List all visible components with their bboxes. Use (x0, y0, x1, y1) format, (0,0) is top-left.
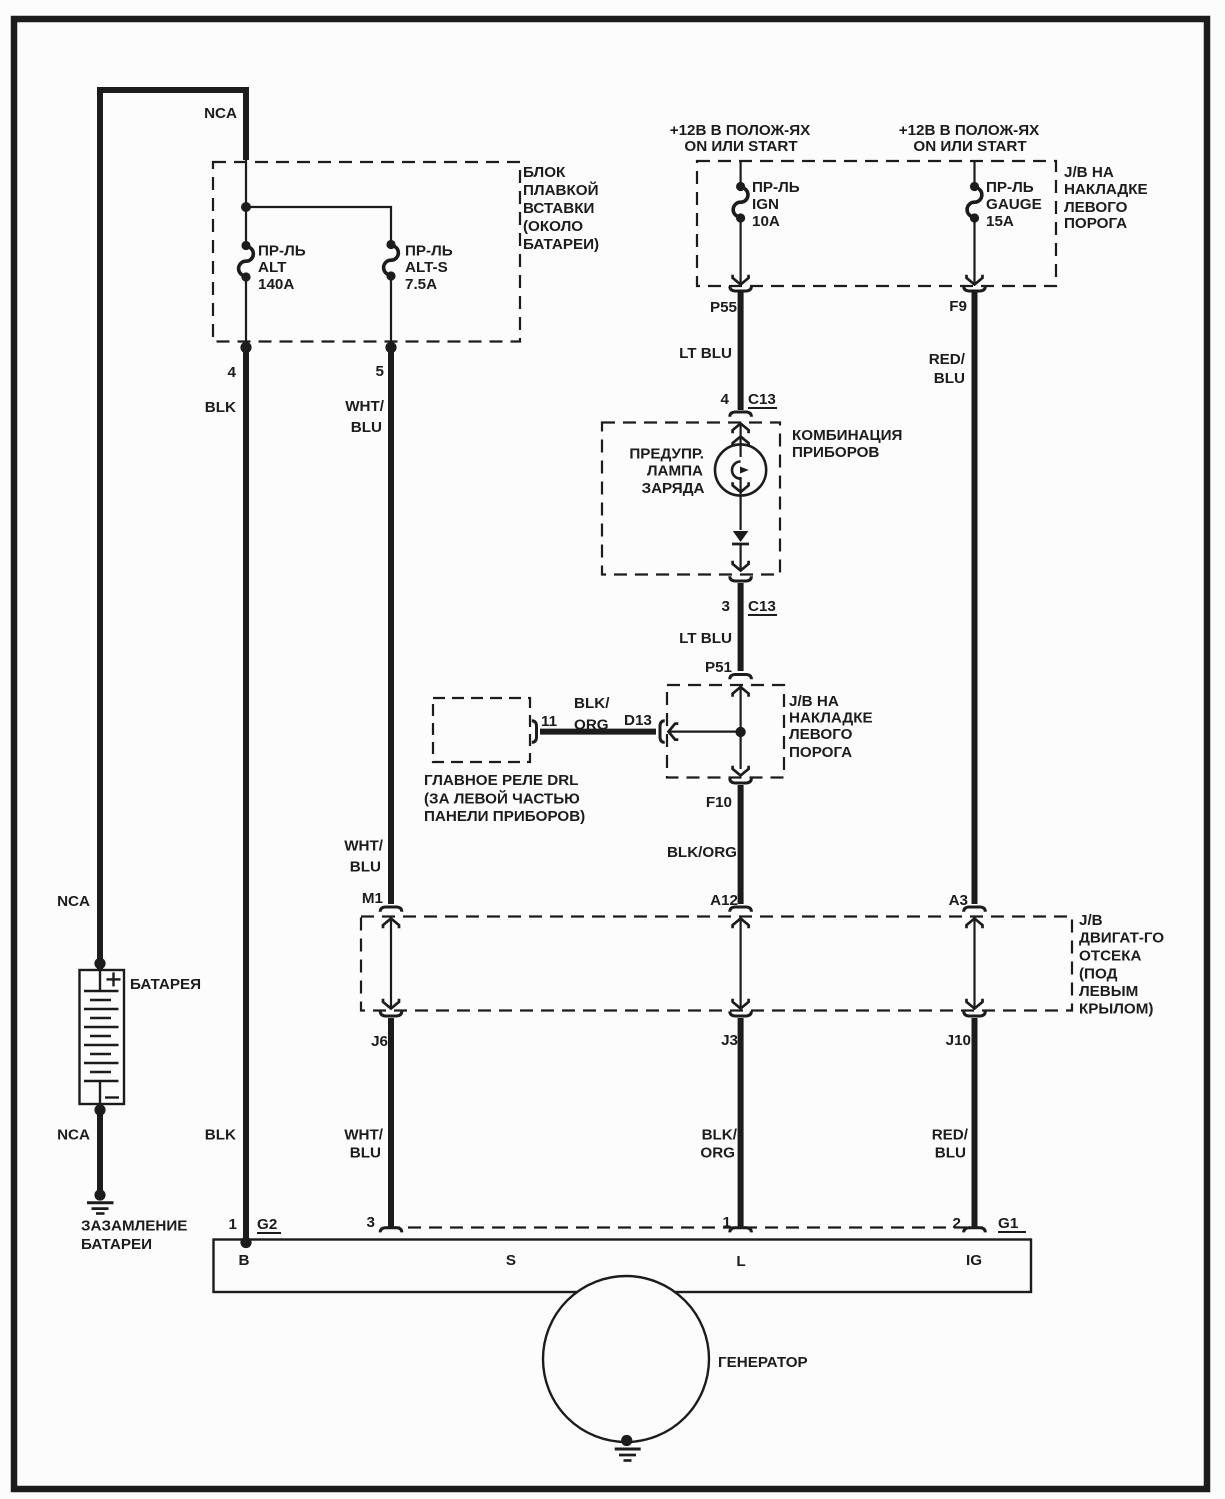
svg-text:4: 4 (721, 391, 730, 408)
svg-text:ПОРОГА: ПОРОГА (789, 744, 852, 761)
svg-text:КОМБИНАЦИЯ: КОМБИНАЦИЯ (792, 427, 902, 444)
svg-text:ЗАЗАМЛЕНИЕ: ЗАЗАМЛЕНИЕ (81, 1218, 187, 1235)
svg-text:ON ИЛИ START: ON ИЛИ START (684, 138, 798, 155)
svg-text:ПР-ЛЬ: ПР-ЛЬ (405, 243, 453, 260)
svg-text:BLK/ORG: BLK/ORG (667, 844, 737, 861)
svg-text:ПР-ЛЬ: ПР-ЛЬ (258, 243, 306, 260)
svg-text:ЛЕВЫМ: ЛЕВЫМ (1079, 983, 1138, 1000)
svg-text:15А: 15А (986, 213, 1014, 230)
svg-text:ПР-ЛЬ: ПР-ЛЬ (752, 179, 800, 196)
svg-text:J/B НА: J/B НА (789, 693, 839, 710)
svg-text:WHT/: WHT/ (344, 1127, 384, 1144)
svg-text:11: 11 (541, 713, 558, 730)
svg-text:RED/: RED/ (932, 1127, 969, 1144)
svg-text:NCA: NCA (57, 1127, 90, 1144)
svg-text:ВСТАВКИ: ВСТАВКИ (523, 200, 594, 217)
svg-text:(ЗА ЛЕВОЙ ЧАСТЬЮ: (ЗА ЛЕВОЙ ЧАСТЬЮ (424, 790, 580, 808)
svg-text:ЛЕВОГО: ЛЕВОГО (1064, 199, 1128, 216)
svg-text:P55: P55 (710, 299, 738, 316)
svg-text:BLU: BLU (350, 1145, 381, 1162)
svg-text:5: 5 (376, 363, 385, 380)
svg-text:LT BLU: LT BLU (679, 630, 732, 647)
svg-text:BLU: BLU (935, 1145, 966, 1162)
svg-text:4: 4 (228, 364, 237, 381)
svg-text:F10: F10 (706, 794, 732, 811)
svg-text:ДВИГАТ-ГО: ДВИГАТ-ГО (1079, 930, 1164, 947)
svg-text:10А: 10А (752, 213, 780, 230)
svg-text:P51: P51 (705, 659, 733, 676)
svg-text:+12В В ПОЛОЖ-ЯХ: +12В В ПОЛОЖ-ЯХ (670, 122, 811, 139)
svg-text:J6: J6 (371, 1033, 388, 1050)
svg-text:BLK: BLK (205, 399, 236, 416)
svg-text:LT BLU: LT BLU (679, 345, 732, 362)
svg-text:ГЕНЕРАТОР: ГЕНЕРАТОР (718, 1354, 808, 1371)
svg-text:L: L (736, 1253, 745, 1270)
svg-text:M1: M1 (362, 890, 384, 907)
svg-text:НАКЛАДКЕ: НАКЛАДКЕ (1064, 181, 1148, 198)
svg-text:B: B (239, 1252, 250, 1269)
svg-text:BLU: BLU (351, 419, 382, 436)
svg-text:BLU: BLU (934, 370, 965, 387)
svg-text:WHT/: WHT/ (344, 838, 384, 855)
svg-text:WHT/: WHT/ (345, 398, 385, 415)
svg-text:3: 3 (367, 1214, 375, 1231)
svg-text:F9: F9 (949, 298, 967, 315)
svg-text:J10: J10 (946, 1032, 971, 1049)
svg-text:J3: J3 (721, 1032, 738, 1049)
svg-text:1: 1 (229, 1216, 238, 1233)
svg-text:J/B: J/B (1079, 912, 1103, 929)
svg-text:ПРИБОРОВ: ПРИБОРОВ (792, 444, 879, 461)
svg-text:D13: D13 (624, 712, 652, 729)
svg-text:BLK: BLK (205, 1127, 236, 1144)
svg-text:C13: C13 (748, 391, 776, 408)
svg-text:C13: C13 (748, 598, 776, 615)
svg-text:(ОКОЛО: (ОКОЛО (523, 218, 583, 235)
svg-text:БАТАРЕИ): БАТАРЕИ) (523, 236, 599, 253)
svg-text:+12В В ПОЛОЖ-ЯХ: +12В В ПОЛОЖ-ЯХ (899, 122, 1040, 139)
svg-text:BLK/: BLK/ (574, 695, 610, 712)
svg-text:ORG: ORG (700, 1145, 735, 1162)
svg-text:ОТСЕКА: ОТСЕКА (1079, 948, 1141, 965)
svg-text:G1: G1 (998, 1215, 1019, 1232)
svg-text:RED/: RED/ (929, 351, 966, 368)
svg-text:ЗАРЯДА: ЗАРЯДА (642, 480, 705, 497)
svg-text:7.5А: 7.5А (405, 276, 437, 293)
svg-text:J/B НА: J/B НА (1064, 164, 1114, 181)
svg-text:BLK/: BLK/ (702, 1127, 738, 1144)
svg-text:ALT: ALT (258, 259, 287, 276)
svg-text:2: 2 (953, 1215, 961, 1232)
svg-text:КРЫЛОМ): КРЫЛОМ) (1079, 1001, 1153, 1018)
svg-text:ПАНЕЛИ ПРИБОРОВ): ПАНЕЛИ ПРИБОРОВ) (424, 808, 585, 825)
svg-text:GAUGE: GAUGE (986, 196, 1042, 213)
svg-text:NCA: NCA (57, 893, 90, 910)
svg-text:БЛОК: БЛОК (523, 164, 566, 181)
svg-text:ПЛАВКОЙ: ПЛАВКОЙ (523, 181, 599, 199)
svg-text:ALT-S: ALT-S (405, 259, 448, 276)
svg-text:ПРЕДУПР.: ПРЕДУПР. (629, 446, 704, 463)
svg-text:NCA: NCA (204, 105, 237, 122)
svg-text:IGN: IGN (752, 196, 779, 213)
svg-text:БАТАРЕИ: БАТАРЕИ (81, 1236, 152, 1253)
svg-text:140А: 140А (258, 276, 294, 293)
svg-text:БАТАРЕЯ: БАТАРЕЯ (130, 976, 201, 993)
svg-text:ПР-ЛЬ: ПР-ЛЬ (986, 179, 1034, 196)
svg-text:ON ИЛИ START: ON ИЛИ START (913, 138, 1027, 155)
svg-text:ГЛАВНОЕ РЕЛЕ DRL: ГЛАВНОЕ РЕЛЕ DRL (424, 772, 578, 789)
svg-text:ЛАМПА: ЛАМПА (647, 463, 703, 480)
svg-text:IG: IG (966, 1252, 982, 1269)
svg-text:ORG: ORG (574, 717, 609, 734)
svg-text:(ПОД: (ПОД (1079, 966, 1118, 983)
svg-text:3: 3 (722, 598, 730, 615)
svg-text:S: S (506, 1252, 516, 1269)
svg-text:BLU: BLU (350, 859, 381, 876)
svg-text:ЛЕВОГО: ЛЕВОГО (789, 726, 853, 743)
svg-text:G2: G2 (257, 1216, 277, 1233)
svg-text:НАКЛАДКЕ: НАКЛАДКЕ (789, 710, 873, 727)
svg-text:ПОРОГА: ПОРОГА (1064, 215, 1127, 232)
